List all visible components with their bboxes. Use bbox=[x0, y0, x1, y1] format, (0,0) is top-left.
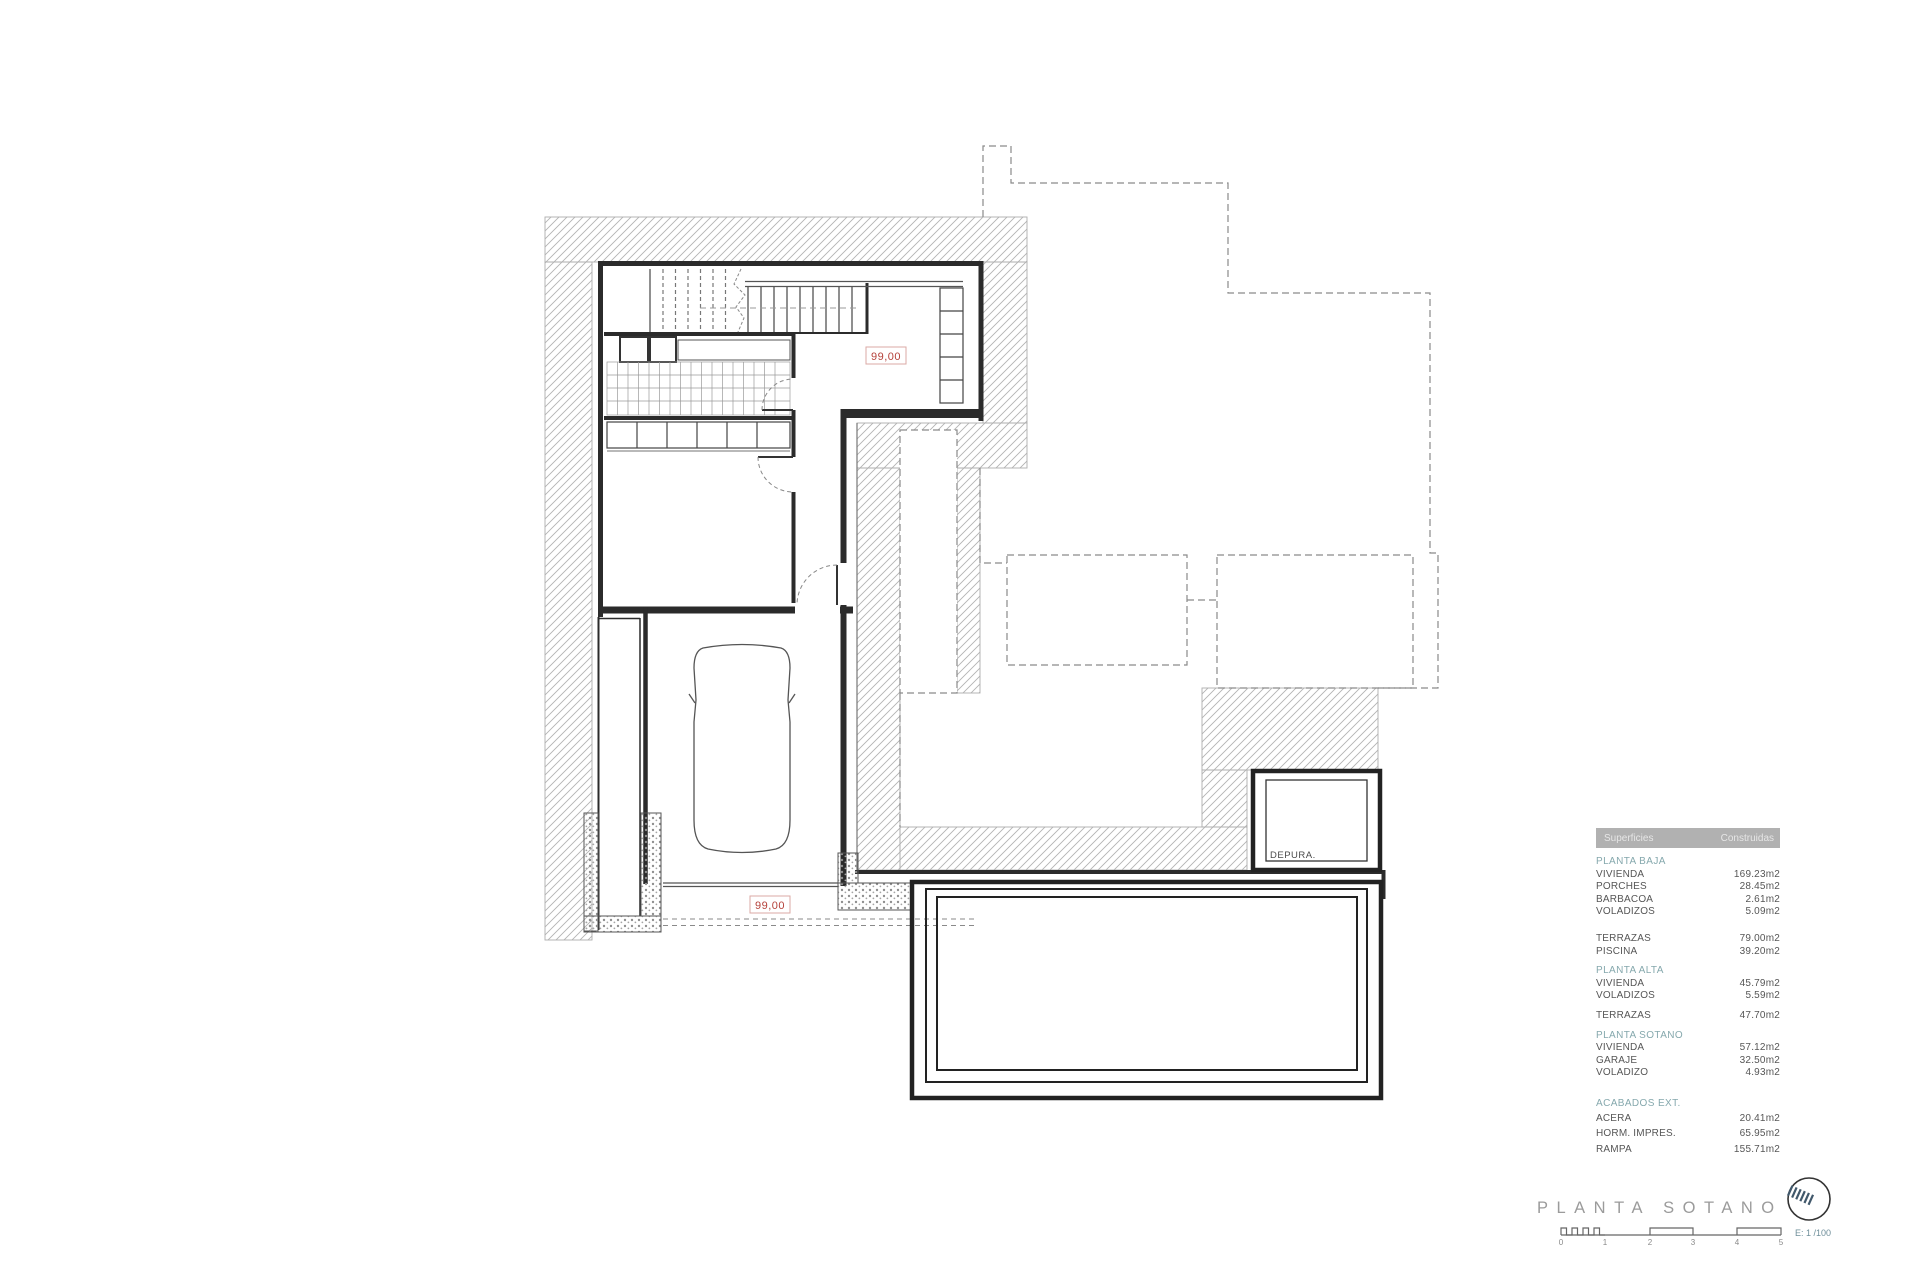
row-value: 32.50m2 bbox=[1740, 1055, 1780, 1068]
table-row: VIVIENDA 57.12m2 bbox=[1596, 1042, 1780, 1055]
table-row: GARAJE 32.50m2 bbox=[1596, 1055, 1780, 1068]
row-value: 155.71m2 bbox=[1734, 1142, 1780, 1158]
surfaces-table: Superficies Construidas PLANTA BAJA VIVI… bbox=[1596, 828, 1780, 1158]
row-value: 79.00m2 bbox=[1740, 933, 1780, 946]
counter bbox=[678, 340, 790, 360]
door-bathroom bbox=[762, 379, 793, 410]
projection-rect-left bbox=[1007, 555, 1187, 665]
hatch-thin-strip bbox=[957, 468, 980, 693]
row-label: PORCHES bbox=[1596, 881, 1647, 894]
surfaces-table-header: Superficies Construidas bbox=[1596, 828, 1780, 848]
projection-lightwell bbox=[900, 430, 957, 693]
table-row: VIVIENDA 45.79m2 bbox=[1596, 978, 1780, 991]
table-row: VOLADIZOS 5.59m2 bbox=[1596, 990, 1780, 1003]
row-label: VOLADIZOS bbox=[1596, 906, 1655, 919]
surfaces-header-col2: Construidas bbox=[1721, 833, 1774, 844]
section-planta-baja: PLANTA BAJA VIVIENDA 169.23m2 PORCHES 28… bbox=[1596, 856, 1780, 919]
surfaces-header-col1: Superficies bbox=[1604, 833, 1653, 844]
depura-room: DEPURA. bbox=[1253, 771, 1380, 870]
row-label: GARAJE bbox=[1596, 1055, 1637, 1068]
car-mirror-right bbox=[789, 694, 795, 703]
pebble-u-bottom bbox=[584, 916, 661, 932]
scale-bar-comb bbox=[1561, 1228, 1605, 1235]
table-row: PORCHES 28.45m2 bbox=[1596, 881, 1780, 894]
stair-break-line bbox=[734, 269, 745, 332]
scale-tick-0: 0 bbox=[1559, 1238, 1564, 1247]
shelf-column bbox=[940, 288, 963, 403]
scale-tick-4: 4 bbox=[1735, 1238, 1740, 1247]
hatch-depura-left bbox=[1202, 770, 1247, 827]
section-title: ACABADOS EXT. bbox=[1596, 1098, 1780, 1111]
scale-bar-step-4-5 bbox=[1737, 1228, 1781, 1235]
stair-treads-dashed bbox=[663, 269, 726, 332]
row-value: 47.70m2 bbox=[1740, 1010, 1780, 1023]
car bbox=[689, 645, 795, 853]
row-label: PISCINA bbox=[1596, 946, 1637, 959]
table-row: VIVIENDA 169.23m2 bbox=[1596, 869, 1780, 882]
scale-tick-1: 1 bbox=[1603, 1238, 1608, 1247]
pool-outer-wall bbox=[912, 882, 1381, 1098]
pebble-l-horizontal bbox=[838, 883, 912, 910]
row-label: TERRAZAS bbox=[1596, 933, 1651, 946]
door-bedroom-swing bbox=[758, 457, 793, 492]
row-value: 65.95m2 bbox=[1740, 1126, 1780, 1142]
pool-mid-wall bbox=[926, 889, 1367, 1082]
row-label: TERRAZAS bbox=[1596, 1010, 1651, 1023]
row-label: HORM. IMPRES. bbox=[1596, 1126, 1676, 1142]
row-value: 57.12m2 bbox=[1740, 1042, 1780, 1055]
section-planta-alta: PLANTA ALTA VIVIENDA 45.79m2 VOLADIZOS 5… bbox=[1596, 965, 1780, 1003]
section-terrazas-piscina: TERRAZAS 79.00m2 PISCINA 39.20m2 bbox=[1596, 933, 1780, 958]
section-acabados-ext: ACABADOS EXT. ACERA 20.41m2 HORM. IMPRES… bbox=[1596, 1098, 1780, 1158]
scale-tick-3: 3 bbox=[1691, 1238, 1696, 1247]
table-row: HORM. IMPRES. 65.95m2 bbox=[1596, 1126, 1780, 1142]
table-row: TERRAZAS 47.70m2 bbox=[1596, 1010, 1780, 1023]
section-title: PLANTA BAJA bbox=[1596, 856, 1780, 869]
car-body bbox=[694, 645, 790, 853]
section-planta-sotano: PLANTA SOTANO VIVIENDA 57.12m2 GARAJE 32… bbox=[1596, 1030, 1780, 1080]
projection-outline bbox=[983, 146, 1438, 688]
table-row: VOLADIZOS 5.09m2 bbox=[1596, 906, 1780, 919]
level-label-lower: 99,00 bbox=[755, 900, 785, 912]
wardrobe-row bbox=[607, 422, 790, 451]
section-title: PLANTA ALTA bbox=[1596, 965, 1780, 978]
scale-bar-ticks: 0 1 2 3 4 5 bbox=[1559, 1238, 1784, 1247]
north-logo-icon bbox=[1788, 1178, 1830, 1220]
table-row: RAMPA 155.71m2 bbox=[1596, 1142, 1780, 1158]
hatch-right-band bbox=[983, 262, 1027, 423]
row-value: 45.79m2 bbox=[1740, 978, 1780, 991]
pebble-u-right bbox=[641, 813, 661, 916]
table-row: TERRAZAS 79.00m2 bbox=[1596, 933, 1780, 946]
door-bedroom bbox=[758, 457, 793, 492]
row-label: BARBACOA bbox=[1596, 894, 1653, 907]
stair-treads-solid bbox=[748, 287, 852, 332]
row-label: VOLADIZO bbox=[1596, 1067, 1648, 1080]
plan-title: PLANTA SOTANO bbox=[1537, 1199, 1783, 1217]
table-row: PISCINA 39.20m2 bbox=[1596, 946, 1780, 959]
scale-bar-step-2-3 bbox=[1650, 1228, 1693, 1235]
hatch-left-arm bbox=[857, 468, 900, 870]
row-value: 28.45m2 bbox=[1740, 881, 1780, 894]
section-terrazas-alta: TERRAZAS 47.70m2 bbox=[1596, 1010, 1780, 1023]
blueprint-page: DEPURA. 99,00 99,00 PLANTA SOTANO bbox=[0, 0, 1920, 1280]
section-title: PLANTA SOTANO bbox=[1596, 1030, 1780, 1043]
plan-footer: PLANTA SOTANO 0 1 2 3 4 5 bbox=[1537, 1178, 1831, 1247]
door-bathroom-swing bbox=[762, 379, 793, 410]
row-value: 4.93m2 bbox=[1745, 1067, 1780, 1080]
scale-tick-5: 5 bbox=[1779, 1238, 1784, 1247]
pebble-u-left bbox=[584, 813, 598, 931]
car-mirror-left bbox=[689, 694, 695, 703]
pebble-l-vertical bbox=[838, 853, 858, 883]
table-row: BARBACOA 2.61m2 bbox=[1596, 894, 1780, 907]
hatch-top-band bbox=[545, 217, 1027, 262]
cabinet-square-1 bbox=[620, 337, 648, 362]
cabinet-square-2 bbox=[650, 337, 676, 362]
row-value: 39.20m2 bbox=[1740, 946, 1780, 959]
staircase bbox=[650, 269, 856, 332]
row-value: 169.23m2 bbox=[1734, 869, 1780, 882]
row-label: VIVIENDA bbox=[1596, 869, 1644, 882]
scale-tick-2: 2 bbox=[1648, 1238, 1653, 1247]
row-value: 20.41m2 bbox=[1740, 1111, 1780, 1127]
row-label: RAMPA bbox=[1596, 1142, 1632, 1158]
projection-rect-right bbox=[1217, 555, 1413, 688]
row-label: ACERA bbox=[1596, 1111, 1631, 1127]
row-value: 5.09m2 bbox=[1745, 906, 1780, 919]
door-garage bbox=[797, 565, 837, 605]
table-row: VOLADIZO 4.93m2 bbox=[1596, 1067, 1780, 1080]
swimming-pool bbox=[912, 882, 1381, 1098]
projection-step bbox=[980, 468, 1007, 563]
row-label: VIVIENDA bbox=[1596, 1042, 1644, 1055]
row-label: VOLADIZOS bbox=[1596, 990, 1655, 1003]
row-label: VIVIENDA bbox=[1596, 978, 1644, 991]
door-garage-swing bbox=[797, 565, 837, 605]
scale-label: E: 1 /100 bbox=[1795, 1228, 1831, 1238]
hatch-depura-top bbox=[1202, 688, 1378, 770]
pool-inner-wall bbox=[937, 897, 1357, 1070]
level-label-upper: 99,00 bbox=[871, 351, 901, 363]
hatch-bottom-band bbox=[900, 827, 1247, 870]
row-value: 5.59m2 bbox=[1745, 990, 1780, 1003]
row-value: 2.61m2 bbox=[1745, 894, 1780, 907]
table-row: ACERA 20.41m2 bbox=[1596, 1111, 1780, 1127]
depura-label: DEPURA. bbox=[1270, 850, 1316, 861]
scale-bar bbox=[1561, 1228, 1781, 1235]
